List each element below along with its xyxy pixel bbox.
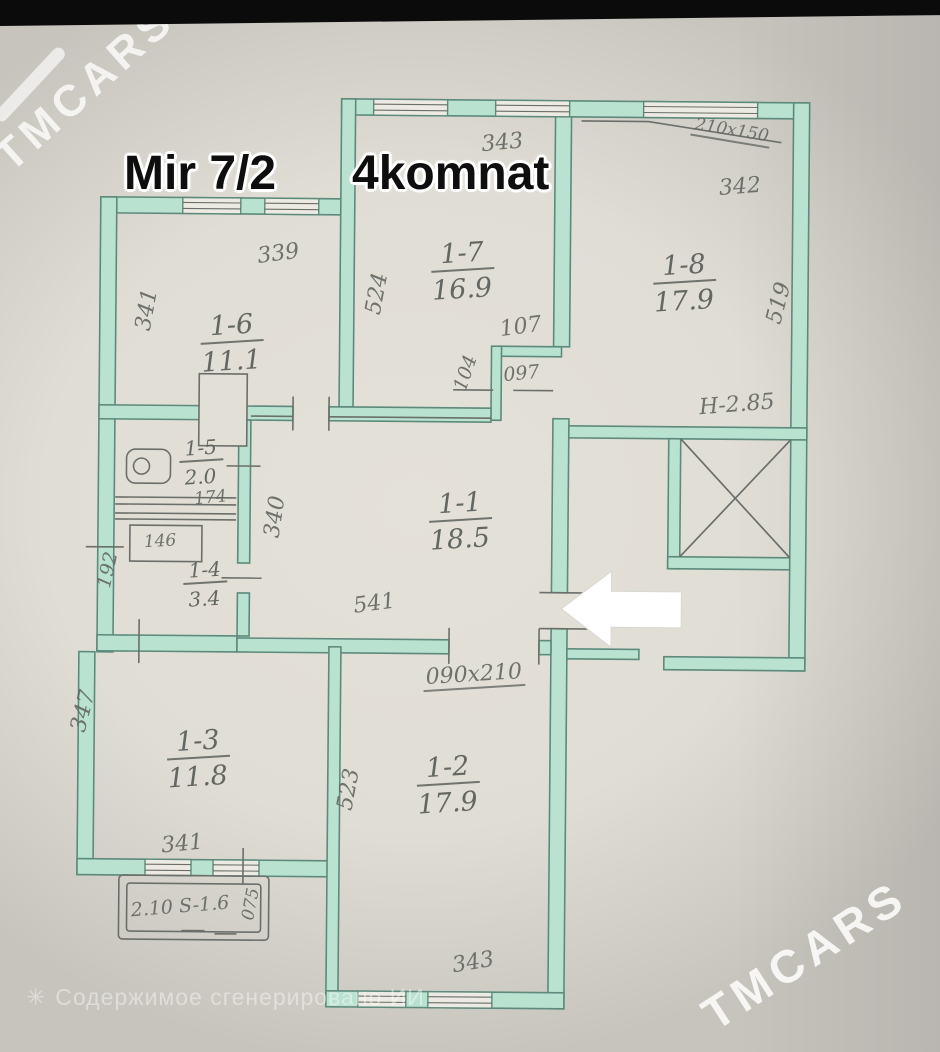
title-rooms-count: 4komnat <box>352 146 549 201</box>
room-number: 1-4 <box>182 556 228 585</box>
room-number: 1-2 <box>415 750 480 787</box>
room-number: 1-7 <box>430 236 495 273</box>
dim-174: 174 <box>193 486 227 509</box>
room-number: 1-8 <box>652 248 717 285</box>
dim-341-bottom: 341 <box>160 830 204 859</box>
room-area: 3.4 <box>149 583 260 614</box>
room-label-1-5: 1-5 2.0 <box>150 435 250 489</box>
dim-342: 342 <box>718 173 762 201</box>
room-label-1-2: 1-2 17.9 <box>377 751 518 819</box>
room-number: 1-6 <box>199 308 264 345</box>
room-number: 1-1 <box>427 486 492 523</box>
room-area: 2.0 <box>150 462 251 492</box>
room-label-1-6: 1-6 11.1 <box>161 309 302 377</box>
room-area: 18.5 <box>389 520 531 559</box>
room-label-1-3: 1-3 11.8 <box>128 725 269 793</box>
entrance-arrow-icon <box>561 571 682 648</box>
ai-generated-caption: ✳Содержимое сгенерировано ИИ <box>26 984 425 1011</box>
room-label-1-4: 1-4 3.4 <box>149 557 259 611</box>
room-area: 11.1 <box>161 342 303 381</box>
room-area: 16.9 <box>391 270 533 309</box>
stairwell-cross <box>680 439 791 558</box>
room-area: 17.9 <box>613 282 755 321</box>
sparkle-icon: ✳ <box>26 984 46 1010</box>
room-number: 1-5 <box>178 434 224 463</box>
ai-caption-text: Содержимое сгенерировано ИИ <box>55 984 425 1010</box>
dim-097: 097 <box>502 361 540 386</box>
room-label-1-7: 1-7 16.9 <box>392 237 533 305</box>
room-label-1-1: 1-1 18.5 <box>390 487 531 555</box>
room-area: 11.8 <box>127 757 269 796</box>
title-address: Mir 7/2 <box>124 146 276 201</box>
dim-146: 146 <box>143 530 177 552</box>
floorplan-photo: 1-1 18.5 1-2 17.9 1-3 11.8 1-4 3.4 1-5 2… <box>0 0 940 1052</box>
room-label-1-8: 1-8 17.9 <box>614 249 755 317</box>
room-number: 1-3 <box>165 724 230 761</box>
room-area: 17.9 <box>377 784 519 823</box>
